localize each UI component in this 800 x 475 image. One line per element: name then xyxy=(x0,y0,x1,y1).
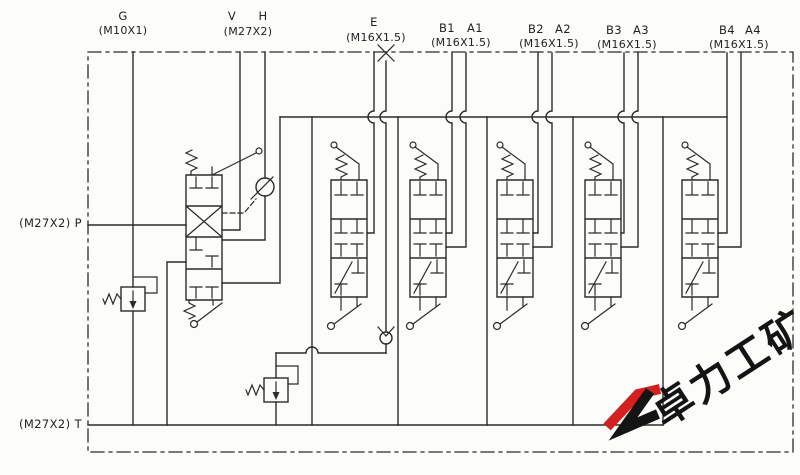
port-b1a1-thread: (M16X1.5) xyxy=(431,36,491,49)
inlet-bottom-spring xyxy=(184,300,195,319)
port-g-thread: (M10X1) xyxy=(99,24,148,37)
port-a4-label: A4 xyxy=(745,23,761,37)
a2-line xyxy=(533,53,552,247)
inlet-valve-section xyxy=(167,148,262,425)
e-port xyxy=(367,45,394,331)
port-b2a2-thread: (M16X1.5) xyxy=(519,37,579,50)
work-valve-section-5 xyxy=(679,142,719,330)
port-vh-thread: (M27X2) xyxy=(224,25,273,38)
inlet-drain-line xyxy=(167,262,186,425)
port-a1-label: A1 xyxy=(467,21,483,35)
unload-cross xyxy=(186,206,222,237)
schematic-page: G (M10X1) V H (M27X2) E (M16X1.5) B1 A1 … xyxy=(0,0,800,475)
e-line-left xyxy=(367,52,374,233)
watermark: 卓力工矿 xyxy=(607,300,800,436)
port-g-label: G xyxy=(118,9,127,23)
hydraulic-schematic: G (M10X1) V H (M27X2) E (M16X1.5) B1 A1 … xyxy=(0,0,800,475)
b1-line xyxy=(446,53,452,233)
lever-pin xyxy=(191,321,198,328)
relief-pilot-loop xyxy=(276,366,298,384)
work-valve-section-1 xyxy=(328,142,368,330)
a4-line xyxy=(718,53,741,247)
work-valve-section-3 xyxy=(494,142,534,330)
secondary-relief-valve xyxy=(246,353,298,425)
main-relief-valve xyxy=(103,277,157,425)
port-b2-label: B2 xyxy=(528,22,544,36)
port-b3a3-thread: (M16X1.5) xyxy=(597,38,657,51)
relief-spring xyxy=(246,385,264,395)
bus-to-inlet-line xyxy=(222,117,280,283)
lever-pin xyxy=(256,148,262,154)
transfer-line xyxy=(276,347,386,353)
e-line-right xyxy=(380,61,386,331)
port-labels: G (M10X1) V H (M27X2) E (M16X1.5) B1 A1 … xyxy=(19,9,769,431)
plugged-port-x-icon xyxy=(378,45,394,61)
port-p-label: (M27X2) P xyxy=(19,216,82,230)
b4-line xyxy=(718,53,727,233)
port-v-label: V xyxy=(228,9,236,23)
watermark-text: 卓力工矿 xyxy=(643,300,800,436)
port-e-thread: (M16X1.5) xyxy=(346,31,406,44)
port-t-label: (M27X2) T xyxy=(19,417,83,431)
port-a2-label: A2 xyxy=(555,22,571,36)
port-b4a4-thread: (M16X1.5) xyxy=(709,38,769,51)
port-e-label: E xyxy=(370,15,378,29)
port-a3-label: A3 xyxy=(633,23,649,37)
v-port-line xyxy=(222,52,240,230)
port-b3-label: B3 xyxy=(606,23,622,37)
port-b4-label: B4 xyxy=(719,23,735,37)
inlet-top-spring xyxy=(186,150,197,175)
port-h-label: H xyxy=(258,9,267,23)
a1-line xyxy=(446,53,466,247)
pilot-dashed-line xyxy=(222,199,256,213)
work-valve-section-2 xyxy=(407,142,447,330)
work-valve-section-4 xyxy=(582,142,622,330)
port-b1-label: B1 xyxy=(439,21,455,35)
relief-spring xyxy=(103,294,121,304)
